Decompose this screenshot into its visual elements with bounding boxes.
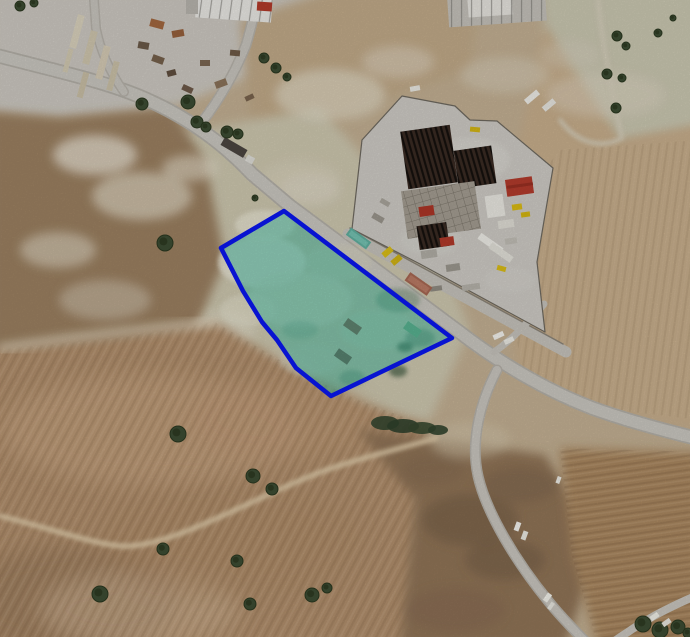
map-viewport[interactable]	[0, 0, 690, 637]
photo-grain	[0, 0, 690, 637]
scene-layers	[0, 0, 690, 637]
satellite-map[interactable]	[0, 0, 690, 637]
